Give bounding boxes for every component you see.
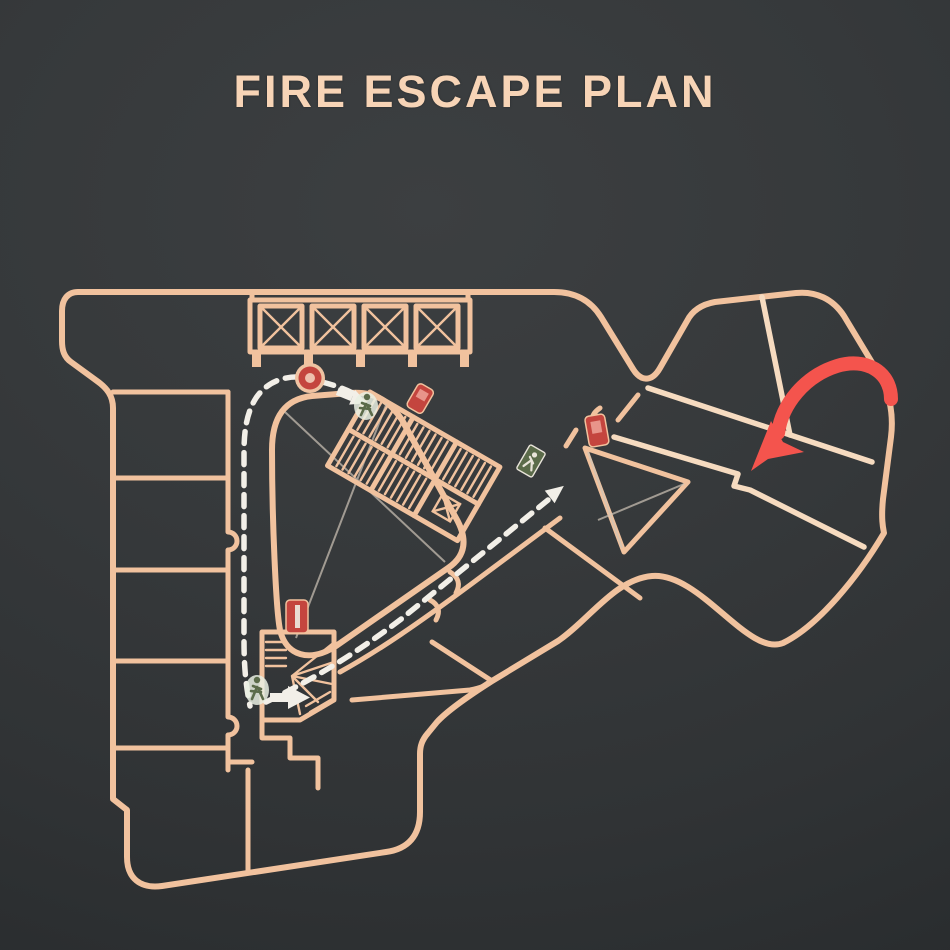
elevator-shaft-2 <box>312 306 354 348</box>
elevator-bank <box>250 292 470 367</box>
fire-extinguisher-upper-icon <box>406 382 435 414</box>
left-wing-partitions <box>113 392 237 770</box>
fire-alarm-icon <box>295 363 325 393</box>
outer-wall <box>62 292 892 886</box>
running-person-upper-icon <box>354 392 378 420</box>
bottom-left-wing-walls <box>228 702 318 872</box>
corridor-wall-left <box>228 392 237 770</box>
you-are-here-arrow <box>751 363 891 471</box>
escape-route <box>244 377 548 706</box>
fire-extinguisher-right-icon <box>584 414 609 448</box>
fire-extinguisher-lower-icon <box>286 600 308 633</box>
running-person-lower-icon <box>245 675 269 705</box>
floor-plan <box>0 0 950 950</box>
elevator-shaft-1 <box>260 306 302 348</box>
lower-staircase <box>262 632 334 720</box>
elevator-shaft-3 <box>364 306 406 348</box>
exit-sign-icon <box>516 444 546 477</box>
stair-triangle-room <box>585 448 688 552</box>
right-wing-walls <box>614 297 872 547</box>
right-wing-inner-diagonal <box>614 437 864 547</box>
elevator-shaft-4 <box>416 306 458 348</box>
upper-staircase <box>328 392 500 541</box>
